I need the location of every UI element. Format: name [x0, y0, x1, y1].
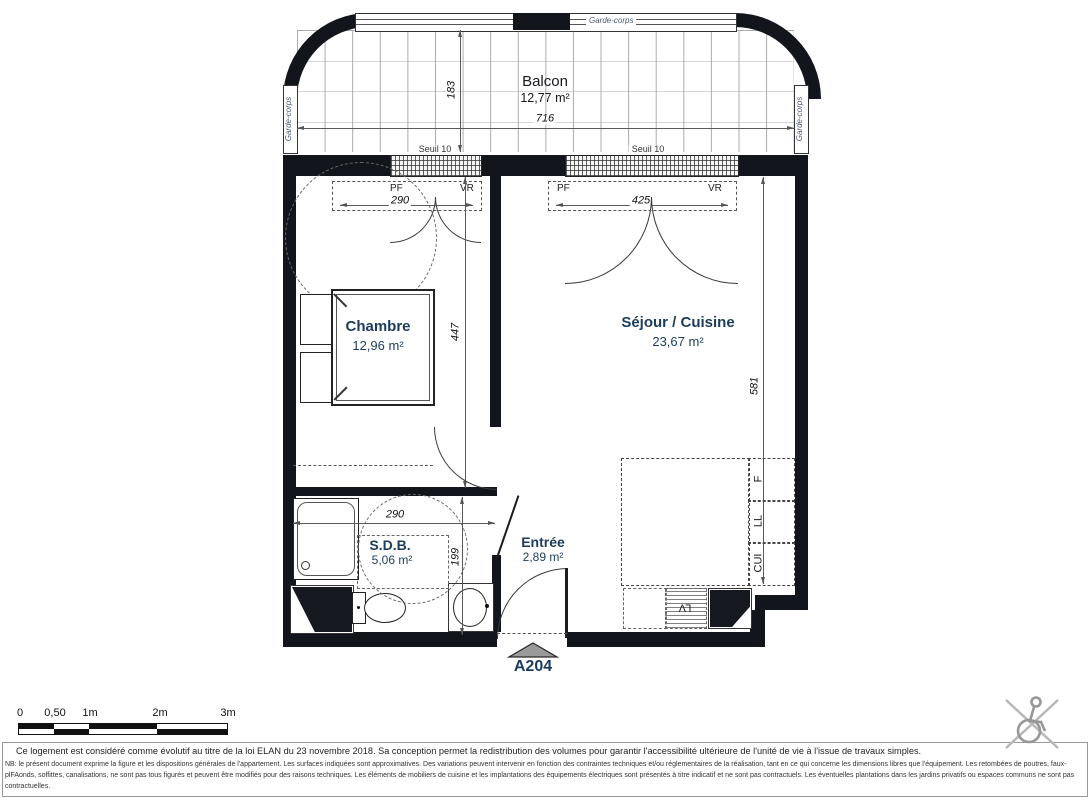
wall-right [795, 155, 808, 595]
dashed-line-chambre [293, 465, 433, 466]
door-swing-arc [565, 197, 652, 284]
scale-tick-050: 0,50 [44, 708, 65, 719]
dim-line-290-sdb [293, 523, 495, 524]
garde-corps-right-wrap: Garde-corps [794, 85, 807, 152]
entrance-threshold [497, 633, 567, 634]
sdb-name: S.D.B. [369, 538, 410, 552]
scale-tick-0: 0 [17, 708, 23, 719]
chambre-name: Chambre [345, 319, 410, 334]
scale-segment [89, 729, 157, 734]
floorplan-page: { "plan": { "unit": "A204", "rooms": { "… [0, 0, 1091, 800]
technical-shaft-sejour [708, 588, 752, 629]
sejour-name: Séjour / Cuisine [621, 315, 734, 330]
garde-corps-left-wrap: Garde-corps [283, 85, 296, 152]
door-swing-arc-entrance [497, 568, 568, 639]
scale-tick-2m: 2m [152, 708, 167, 719]
seuil-label-1: Seuil 10 [416, 145, 455, 154]
entree-name: Entrée [521, 535, 565, 549]
dim-716: 716 [534, 114, 556, 125]
scale-segment [157, 729, 227, 734]
pf-label-2: PF [557, 184, 570, 194]
kitchen-zone [621, 458, 750, 586]
garde-corps-label-left: Garde-corps [286, 96, 294, 140]
dim-581: 581 [750, 375, 761, 397]
sdb-area: 5,06 m² [372, 554, 413, 566]
no-wheelchair-icon [1000, 690, 1064, 754]
door-leaf-entrance [565, 568, 568, 638]
scale-segment [54, 729, 89, 734]
dishwasher-label: LV [679, 602, 692, 613]
door-swing-arc [435, 197, 481, 243]
door-swing-arc-chambre [434, 427, 497, 490]
nightstand [300, 294, 334, 345]
sejour-area: 23,67 m² [652, 335, 703, 348]
nightstand [300, 352, 334, 403]
washer-label: LL [754, 515, 765, 527]
dim-line-183 [460, 30, 461, 152]
garde-corps-label-right: Garde-corps [797, 96, 805, 140]
wall-segment [480, 155, 565, 176]
dim-447: 447 [451, 321, 462, 343]
scale-tick-3m: 3m [220, 708, 235, 719]
footer-evolutif-text: Ce logement est considéré comme évolutif… [16, 747, 921, 756]
scale-bar-strip [18, 723, 228, 735]
dim-line-199 [462, 497, 463, 635]
window-sejour [565, 155, 739, 177]
scale-tick-1m: 1m [82, 708, 97, 719]
garde-corps-label-top: Garde-corps [586, 17, 636, 25]
dim-line-716 [297, 128, 794, 129]
technical-shaft-sdb [290, 585, 354, 634]
floorplan: Garde-corps Garde-corps Garde-corps Balc… [0, 0, 1091, 800]
footer-nb-text: NB: le présent document exprime la figur… [5, 760, 1083, 792]
wall-bottom-left [283, 632, 497, 647]
door-leaf-sdb [496, 495, 519, 558]
wall-interior-vertical [490, 176, 501, 427]
dim-183: 183 [447, 79, 458, 101]
wall-interior-horizontal [283, 487, 497, 496]
scale-row-bottom [19, 729, 227, 734]
washbasin-bowl [453, 588, 487, 627]
door-swing-arc [651, 197, 738, 284]
shower-drain [301, 561, 310, 570]
entree-area: 2,89 m² [523, 551, 564, 563]
vr-label-1: VR [460, 184, 474, 194]
scale-bar: 0 0,50 1m 2m 3m [16, 708, 236, 740]
kitchen-counter-label: CUI [754, 554, 765, 573]
dim-290-sdb: 290 [384, 510, 406, 521]
shower [293, 498, 359, 580]
shaft-fill [292, 587, 352, 632]
balcony-area: 12,77 m² [520, 92, 569, 105]
seuil-label-2: Seuil 10 [629, 145, 668, 154]
wall-segment [755, 595, 808, 610]
scale-segment [19, 729, 54, 734]
unit-number: A204 [514, 659, 552, 675]
vr-label-2: VR [708, 184, 722, 194]
window-chambre [390, 155, 482, 177]
appliance-slot [623, 588, 667, 629]
fridge-label: F [754, 476, 765, 483]
dim-199: 199 [451, 546, 462, 568]
toilet-button [357, 606, 360, 609]
railing-pillar [513, 13, 570, 30]
washbasin-faucet [485, 604, 489, 608]
chambre-area: 12,96 m² [352, 339, 403, 352]
balcony-name: Balcon [522, 74, 568, 89]
washbasin-cabinet [448, 583, 494, 632]
wall-bottom-right [567, 632, 763, 647]
shaft-fill [710, 590, 750, 627]
entrance-marker-triangle [506, 640, 560, 660]
